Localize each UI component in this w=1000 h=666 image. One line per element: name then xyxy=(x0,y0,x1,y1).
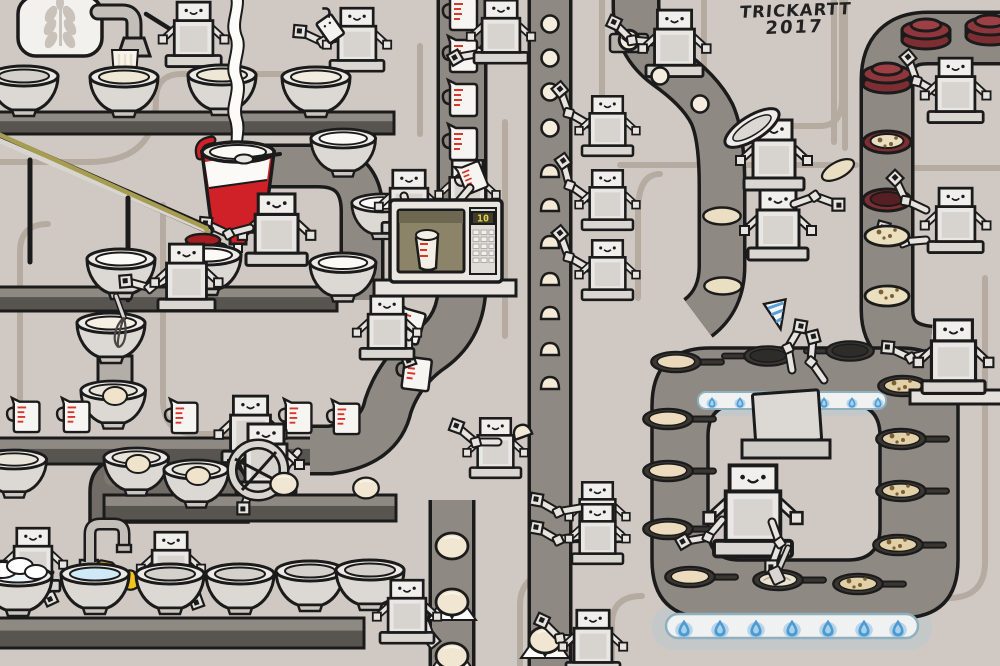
dough-ball xyxy=(353,478,379,499)
background-pipe xyxy=(638,174,660,298)
butter-pat xyxy=(541,343,559,355)
robot-belt-tender xyxy=(575,170,640,230)
measuring-cup xyxy=(57,398,89,432)
chip-jar-closed xyxy=(966,15,1000,45)
butter-pat xyxy=(541,377,559,389)
batter-oval xyxy=(704,278,741,295)
measuring-cup xyxy=(7,398,39,432)
robot-jar xyxy=(921,58,991,122)
butter-pat xyxy=(541,199,559,211)
bowl-flour xyxy=(188,65,256,115)
bowl-batter xyxy=(77,313,145,363)
butter-pat xyxy=(541,165,559,177)
robot-griddle xyxy=(704,465,803,556)
dough-ball xyxy=(186,467,210,485)
flour-hopper xyxy=(18,0,102,56)
dough-ball xyxy=(126,455,150,473)
robot-belt-tender xyxy=(575,96,640,156)
artist-signature: TRICKARTT 2017 xyxy=(735,0,855,40)
batter-oval xyxy=(819,155,858,186)
chip-batter-disc xyxy=(865,286,909,306)
background-pipe xyxy=(612,596,642,666)
butter-pat xyxy=(541,273,559,285)
bowl-clean xyxy=(276,561,344,611)
bowl-seasoned xyxy=(282,67,350,117)
soap-suds xyxy=(25,565,47,579)
egg xyxy=(542,50,559,67)
butter-pat xyxy=(541,307,559,319)
robot-belt-tender xyxy=(575,240,640,299)
bowl-rinse xyxy=(61,564,129,614)
egg xyxy=(542,120,559,137)
robot-jar xyxy=(921,188,991,252)
bowl-clean xyxy=(206,564,274,614)
bowl-dough xyxy=(0,450,47,498)
robot-flour-lever xyxy=(159,2,229,66)
belt-dish-row-shadow xyxy=(0,631,363,647)
chip-jar-closed xyxy=(863,63,911,93)
batter-oval xyxy=(703,208,740,225)
bowl-flour xyxy=(90,67,158,117)
microwave-display: 10 xyxy=(477,214,489,225)
batter-bag xyxy=(764,299,791,331)
measuring-spoon-bowl xyxy=(235,155,253,164)
chip-jar-closed xyxy=(902,19,950,49)
pancake-factory-illustration: 10 TRICKARTT 2017 xyxy=(0,0,1000,666)
egg xyxy=(692,96,709,113)
microwave xyxy=(390,200,502,282)
dough-ball xyxy=(270,473,297,495)
bowl-empty xyxy=(0,66,58,116)
batter-dispenser xyxy=(752,390,821,444)
dough-ball xyxy=(436,589,468,615)
illustration-canvas: 10 xyxy=(0,0,1000,666)
dispenser-base xyxy=(742,440,830,458)
chip-batter-disc xyxy=(865,226,909,246)
chip-jar-open xyxy=(863,131,911,153)
egg xyxy=(542,16,559,33)
background-pipe xyxy=(20,224,48,412)
dough-ball xyxy=(436,533,468,559)
scene-items xyxy=(0,0,1000,666)
dough-ball xyxy=(103,387,127,405)
butter-pat xyxy=(541,236,559,248)
dough-ball xyxy=(436,643,468,666)
egg xyxy=(652,68,669,85)
robot-cup-grab xyxy=(353,296,421,359)
